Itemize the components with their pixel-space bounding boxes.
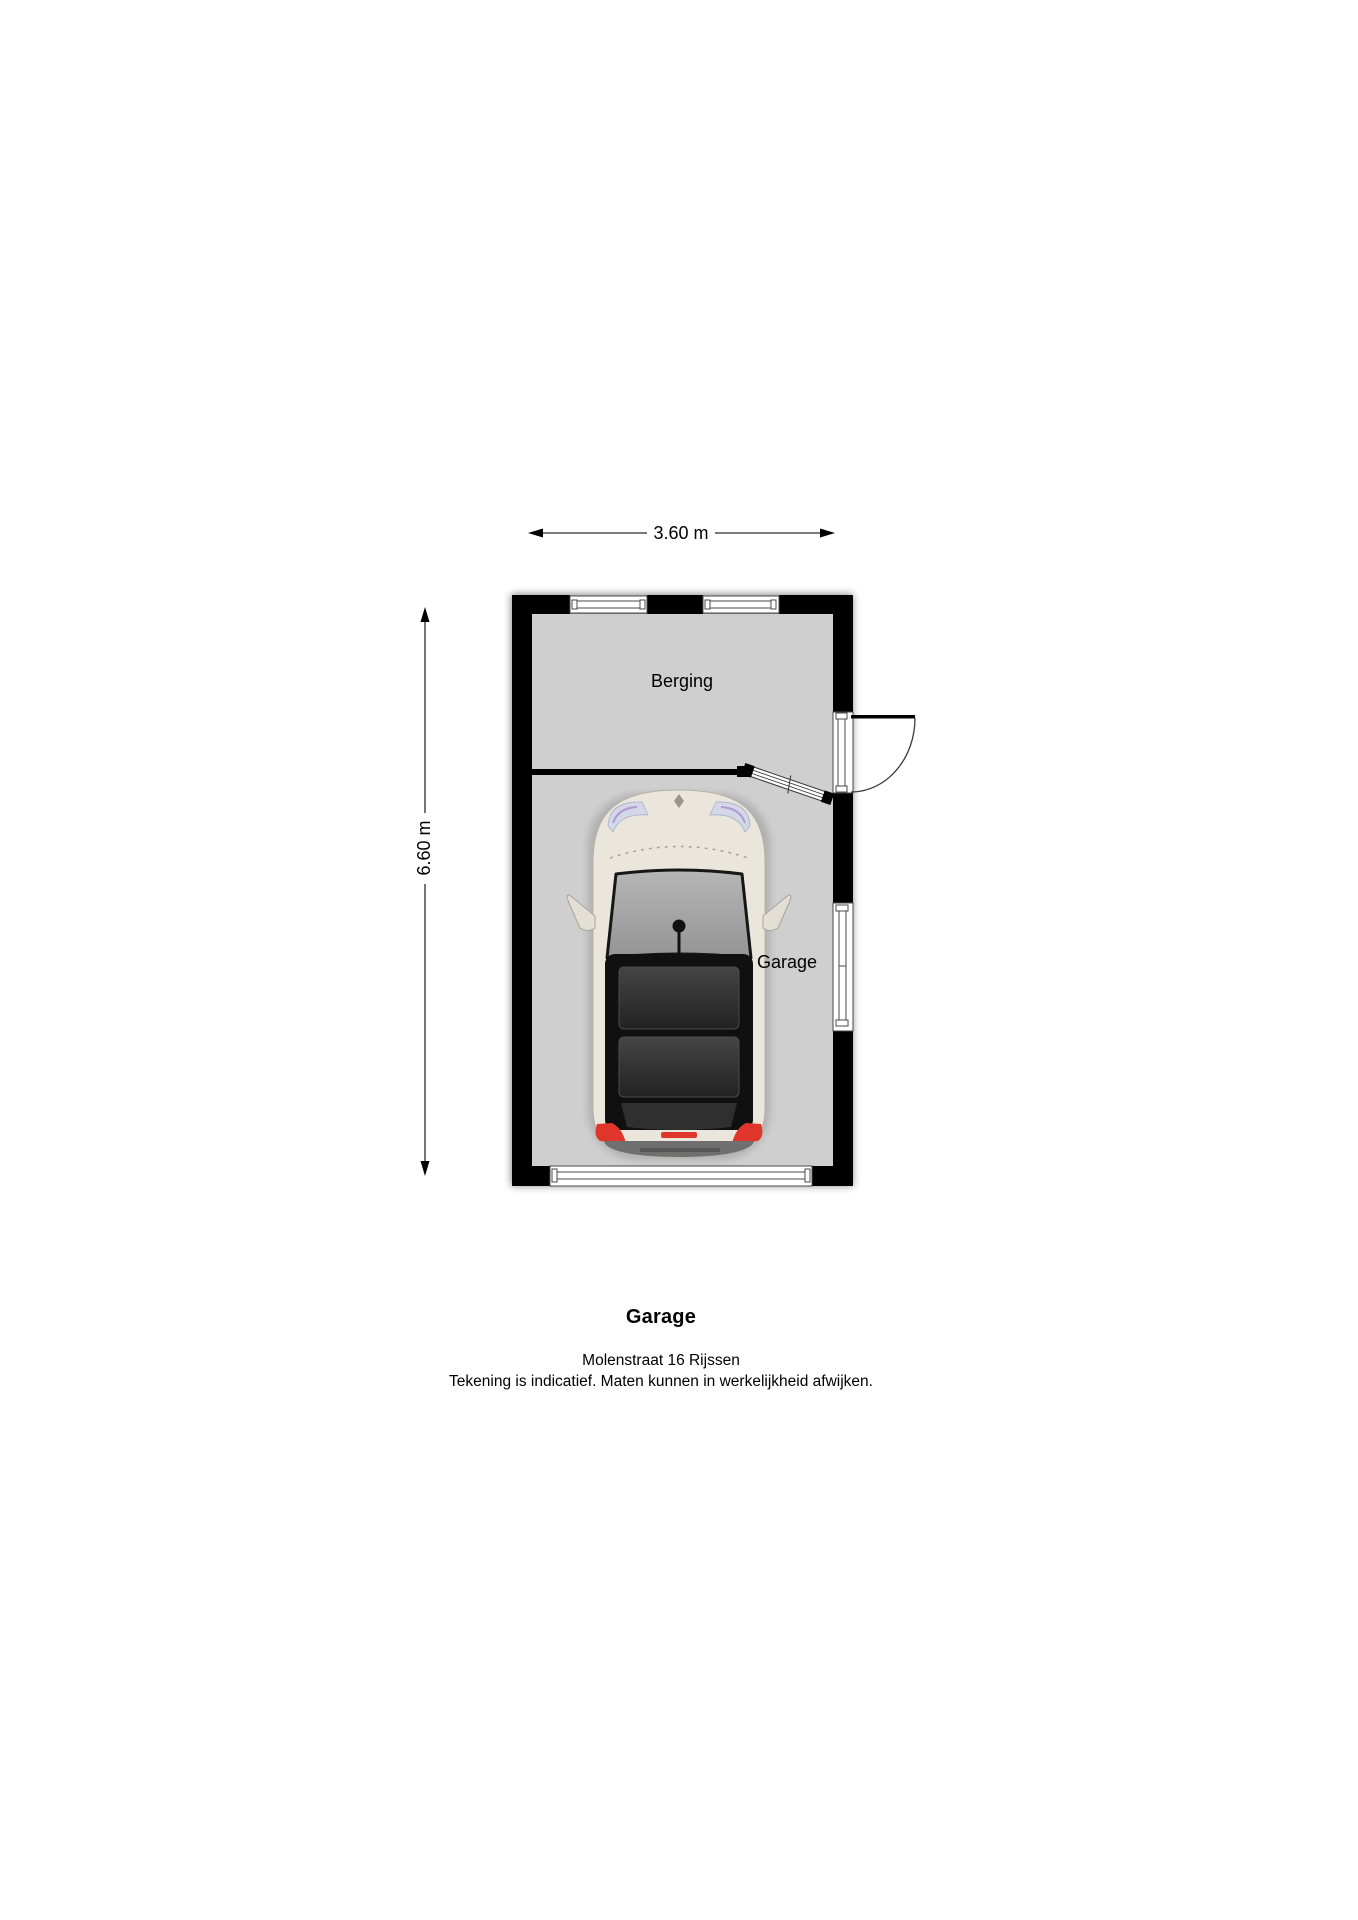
room-label-garage: Garage [757, 952, 817, 972]
wall-right-upper [833, 595, 853, 712]
car-rear-window [621, 1103, 737, 1130]
wall-right-lower [833, 1031, 853, 1186]
entry-door-leaf [851, 715, 915, 719]
wall-bottom-right [812, 1166, 853, 1186]
arrow-down-icon [421, 1161, 430, 1176]
floorplan-page: 3.60 m 6.60 m Berging Garage Garage Mole… [0, 0, 1358, 1920]
car-sunroof-front [619, 967, 739, 1029]
car-sunroof-rear [619, 1037, 739, 1097]
garage-door [550, 1166, 812, 1186]
window-top-right [703, 596, 779, 613]
plan-disclaimer: Tekening is indicatief. Maten kunnen in … [0, 1371, 1322, 1392]
door-swing-arc [851, 718, 915, 792]
wall-left [512, 595, 532, 1186]
caption-block: Garage Molenstraat 16 Rijssen Tekening i… [0, 1306, 1322, 1392]
arrow-up-icon [421, 607, 430, 622]
window-top-left [570, 596, 647, 613]
room-label-berging: Berging [651, 671, 713, 691]
arrow-right-icon [820, 529, 835, 538]
wall-right-middle [833, 793, 853, 903]
plan-address: Molenstraat 16 Rijssen [0, 1350, 1322, 1371]
entry-door-opening [833, 712, 853, 793]
wall-top-middle [647, 595, 703, 614]
dimension-width: 3.60 m [528, 523, 835, 543]
window-right [833, 903, 853, 1031]
wall-interior-partition [532, 769, 745, 775]
dimension-width-label: 3.60 m [653, 523, 708, 543]
wall-bottom-left [512, 1166, 550, 1186]
dimension-height: 6.60 m [414, 607, 434, 1176]
plan-title: Garage [0, 1306, 1322, 1329]
car-top-view [567, 790, 791, 1160]
arrow-left-icon [528, 529, 543, 538]
dimension-height-label: 6.60 m [414, 820, 434, 875]
plan-subtitle: Molenstraat 16 Rijssen Tekening is indic… [0, 1350, 1322, 1392]
floor-plan-drawing: 3.60 m 6.60 m Berging Garage [0, 0, 1358, 1920]
car-brake-light [661, 1132, 697, 1138]
entry-door [851, 715, 915, 792]
